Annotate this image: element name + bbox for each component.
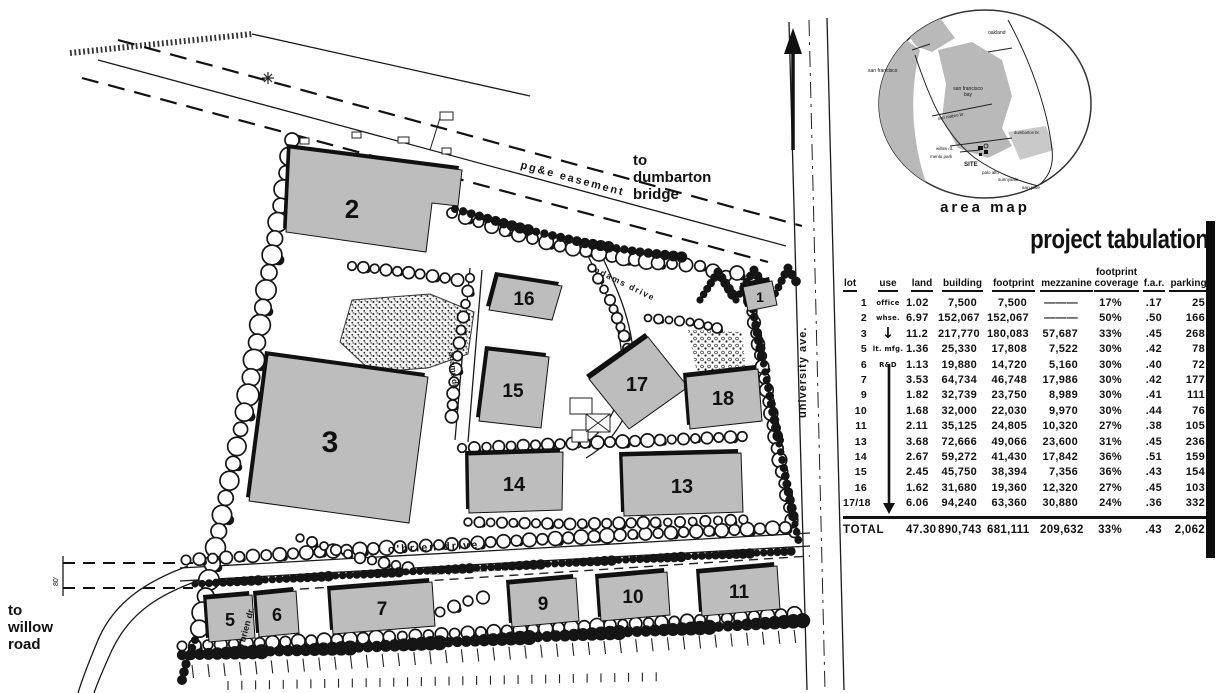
cell-lot: 13 — [843, 435, 870, 450]
cell-building: 7,500 — [938, 296, 987, 311]
cell-mezzanine: 17,986 — [1040, 373, 1093, 388]
building-6: 6 — [253, 587, 299, 637]
column-header-use: use — [870, 278, 906, 292]
cell-building: 217,770 — [938, 327, 987, 342]
building-label-17: 17 — [626, 374, 648, 396]
building-label-16: 16 — [513, 289, 534, 310]
scanned-site-plan-page: 12356791011131415161718 pg&e easement o'… — [0, 0, 1221, 693]
cell-lot: 16 — [843, 481, 870, 496]
label-to-willow-road: to willow road — [8, 603, 53, 653]
cell-land: 1.82 — [906, 388, 938, 403]
map-label-willow-rd: willow rd. — [936, 146, 953, 151]
building-label-1: 1 — [756, 289, 764, 305]
cell-coverage: 27% — [1093, 419, 1140, 434]
project-tabulation: project tabulation lotuselandbuildingfoo… — [843, 224, 1209, 539]
cell-mezzanine: 30,880 — [1040, 496, 1093, 511]
building-label-3: 3 — [322, 426, 339, 459]
cell-use — [870, 435, 906, 450]
cell-footprint: 22,030 — [987, 404, 1040, 419]
cell-mezzanine: 5,160 — [1040, 358, 1093, 373]
cell-land: 3.68 — [906, 435, 938, 450]
column-header-mezzanine: mezzanine — [1040, 278, 1093, 292]
cell-building: 94,240 — [938, 496, 987, 511]
cell-land: 2.67 — [906, 450, 938, 465]
cell-parking: 25 — [1168, 296, 1209, 311]
cell-use — [870, 404, 906, 419]
cell-far: .45 — [1140, 481, 1168, 496]
rail-spur-line — [252, 34, 530, 96]
cell-land: 1.02 — [906, 296, 938, 311]
cell-coverage: 24% — [1093, 496, 1140, 511]
cell-lot: 6 — [843, 358, 870, 373]
building-label-9: 9 — [538, 594, 549, 615]
building-label-14: 14 — [503, 474, 526, 496]
cell-land: 1.68 — [906, 404, 938, 419]
building-15: 15 — [476, 346, 549, 428]
cell-coverage: 30% — [1093, 342, 1140, 357]
cell-footprint: 49,066 — [987, 435, 1040, 450]
cell-parking: 166 — [1168, 311, 1209, 326]
cell-far: .43 — [1140, 465, 1168, 480]
cell-lot: 9 — [843, 388, 870, 403]
cell-building: 31,680 — [938, 481, 987, 496]
cell-use — [870, 465, 906, 480]
parking-ticks — [228, 672, 656, 690]
pgae-easement-label: pg&e easement — [519, 159, 626, 198]
cell-far: .40 — [1140, 358, 1168, 373]
map-label-menlo-park: menlo park — [930, 154, 953, 159]
cell-use — [870, 450, 906, 465]
map-label-dumbarton-br: dumbarton br. — [1014, 130, 1040, 135]
cell-lot: 7 — [843, 373, 870, 388]
adams-drive-label: adams drive — [593, 265, 657, 303]
cell-footprint: 38,394 — [987, 465, 1040, 480]
building-11: 11 — [696, 562, 780, 616]
university-ave-east-edge — [827, 18, 844, 690]
cell-land: 1.13 — [906, 358, 938, 373]
cell-lot: 11 — [843, 419, 870, 434]
cell-mezzanine: 7,356 — [1040, 465, 1093, 480]
cell-parking: 76 — [1168, 404, 1209, 419]
total-cell-far: .43 — [1140, 523, 1168, 538]
cell-use — [870, 496, 906, 511]
cell-far: .38 — [1140, 419, 1168, 434]
cell-use: ↓ — [870, 327, 906, 342]
cell-coverage: 36% — [1093, 465, 1140, 480]
cell-far: .44 — [1140, 404, 1168, 419]
easement-star-symbol — [262, 72, 274, 84]
cell-mezzanine: ——— — [1040, 296, 1093, 311]
tabulation-total-row: TOTAL47.30890,743681,111209,63233%.432,0… — [843, 516, 1209, 538]
cell-footprint: 152,067 — [987, 311, 1040, 326]
column-header-far: f.a.r. — [1140, 278, 1168, 292]
cell-footprint: 63,360 — [987, 496, 1040, 511]
area-map: oaklandsan franciscosan franciscobaysan … — [865, 10, 1091, 216]
column-header-parking: parking — [1168, 278, 1209, 292]
label-to-dumbarton-bridge: to dumbarton bridge — [633, 153, 711, 203]
cell-far: .36 — [1140, 496, 1168, 511]
cell-far: .50 — [1140, 311, 1168, 326]
total-cell-footprint: 681,111 — [987, 523, 1040, 538]
area-map-caption: area map — [940, 199, 1030, 216]
cell-use: R&D — [870, 358, 906, 373]
cell-land: 11.2 — [906, 327, 938, 342]
cell-parking: 103 — [1168, 481, 1209, 496]
cell-coverage: 30% — [1093, 373, 1140, 388]
cell-use — [870, 388, 906, 403]
cell-lot: 3 — [843, 327, 870, 342]
cell-land: 1.36 — [906, 342, 938, 357]
cell-lot: 14 — [843, 450, 870, 465]
cell-land: 2.45 — [906, 465, 938, 480]
tabulation-title: project tabulation — [1031, 224, 1209, 255]
cell-coverage: 33% — [1093, 327, 1140, 342]
cell-coverage: 36% — [1093, 450, 1140, 465]
cell-use — [870, 481, 906, 496]
cell-far: .51 — [1140, 450, 1168, 465]
cell-lot: 5 — [843, 342, 870, 357]
map-label-sunnyvale: sunnyvale — [998, 177, 1019, 182]
total-cell-parking: 2,062 — [1168, 523, 1209, 538]
cell-footprint: 7,500 — [987, 296, 1040, 311]
dimension-80ft-label: 80' — [53, 577, 60, 586]
cell-footprint: 46,748 — [987, 373, 1040, 388]
map-label-palo-alto: palo alto — [982, 170, 1000, 175]
cell-building: 25,330 — [938, 342, 987, 357]
cell-land: 1.62 — [906, 481, 938, 496]
cell-mezzanine: 17,842 — [1040, 450, 1093, 465]
cell-far: .41 — [1140, 388, 1168, 403]
cell-mezzanine: 12,320 — [1040, 481, 1093, 496]
cell-parking: 268 — [1168, 327, 1209, 342]
building-18: 18 — [683, 365, 762, 429]
building-14: 14 — [465, 448, 563, 513]
cell-building: 35,125 — [938, 419, 987, 434]
cell-footprint: 180,083 — [987, 327, 1040, 342]
cell-footprint: 24,805 — [987, 419, 1040, 434]
cell-parking: 159 — [1168, 450, 1209, 465]
building-label-11: 11 — [729, 582, 750, 603]
total-cell-mezzanine: 209,632 — [1040, 523, 1093, 538]
cell-lot: 10 — [843, 404, 870, 419]
cell-building: 32,739 — [938, 388, 987, 403]
north-arrow-head — [784, 28, 802, 54]
cell-footprint: 14,720 — [987, 358, 1040, 373]
map-label-san-francisco: san francisco — [868, 68, 898, 74]
tabulation-header: lotuselandbuildingfootprintmezzaninefoot… — [843, 262, 1209, 292]
cell-building: 152,067 — [938, 311, 987, 326]
cell-mezzanine: 8,989 — [1040, 388, 1093, 403]
cell-footprint: 19,360 — [987, 481, 1040, 496]
cell-coverage: 30% — [1093, 388, 1140, 403]
cell-coverage: 30% — [1093, 358, 1140, 373]
cell-building: 59,272 — [938, 450, 987, 465]
building-2: 2 — [283, 144, 462, 252]
building-label-13: 13 — [671, 476, 693, 498]
tree-row — [435, 591, 489, 616]
right-edge-bar — [1206, 221, 1215, 558]
cell-land: 2.11 — [906, 419, 938, 434]
cell-land: 6.06 — [906, 496, 938, 511]
total-cell-building: 890,743 — [938, 523, 987, 538]
cell-far: .42 — [1140, 342, 1168, 357]
university-ave-label: university ave. — [797, 327, 809, 418]
building-label-10: 10 — [622, 587, 643, 608]
cell-far: .42 — [1140, 373, 1168, 388]
cell-lot: 2 — [843, 311, 870, 326]
cell-lot: 15 — [843, 465, 870, 480]
cell-building: 72,666 — [938, 435, 987, 450]
cell-building: 19,880 — [938, 358, 987, 373]
cell-mezzanine: 57,687 — [1040, 327, 1093, 342]
cell-far: .17 — [1140, 296, 1168, 311]
tree-row — [348, 262, 464, 286]
cell-parking: 105 — [1168, 419, 1209, 434]
cell-mezzanine: 10,320 — [1040, 419, 1093, 434]
building-label-6: 6 — [272, 605, 282, 625]
cell-mezzanine: ——— — [1040, 311, 1093, 326]
building-16: 16 — [486, 272, 562, 320]
tree-row — [644, 314, 723, 333]
cell-lot: 1 — [843, 296, 870, 311]
university-ave-centerline — [809, 20, 825, 690]
building-label-15: 15 — [502, 381, 524, 402]
cell-parking: 111 — [1168, 388, 1209, 403]
cell-use — [870, 419, 906, 434]
cell-far: .45 — [1140, 435, 1168, 450]
building-1: 1 — [740, 277, 777, 311]
building-3: 3 — [246, 351, 428, 523]
cell-parking: 236 — [1168, 435, 1209, 450]
building-label-2: 2 — [345, 194, 359, 224]
cell-footprint: 41,430 — [987, 450, 1040, 465]
cell-use — [870, 373, 906, 388]
cell-building: 64,734 — [938, 373, 987, 388]
total-cell-total: TOTAL — [843, 523, 906, 538]
cell-coverage: 27% — [1093, 481, 1140, 496]
cell-coverage: 31% — [1093, 435, 1140, 450]
cell-coverage: 17% — [1093, 296, 1140, 311]
cell-lot: 17/18 — [843, 496, 870, 511]
cell-land: 3.53 — [906, 373, 938, 388]
map-label-oakland: oakland — [988, 30, 1006, 36]
column-header-building: building — [938, 278, 987, 292]
cell-use: office — [870, 296, 906, 311]
cell-coverage: 30% — [1093, 404, 1140, 419]
building-13: 13 — [619, 449, 743, 516]
tabulation-title-row: project tabulation — [843, 224, 1209, 262]
column-header-lot: lot — [843, 278, 870, 292]
column-header-land: land — [906, 278, 938, 292]
railroad-line — [70, 34, 252, 53]
tabulation-rows: 1office1.027,5007,500———17%.17252whse.6.… — [843, 296, 1209, 511]
cell-parking: 154 — [1168, 465, 1209, 480]
cell-parking: 78 — [1168, 342, 1209, 357]
cell-parking: 177 — [1168, 373, 1209, 388]
total-cell-land: 47.30 — [906, 523, 938, 538]
building-label-5: 5 — [225, 610, 235, 630]
cell-building: 32,000 — [938, 404, 987, 419]
cell-building: 45,750 — [938, 465, 987, 480]
obrien-dr-curve-west — [78, 566, 188, 693]
cell-use: lt. mfg. — [870, 342, 906, 357]
cell-mezzanine: 9,970 — [1040, 404, 1093, 419]
cell-footprint: 23,750 — [987, 388, 1040, 403]
building-10: 10 — [595, 568, 670, 621]
cell-far: .45 — [1140, 327, 1168, 342]
cell-parking: 332 — [1168, 496, 1209, 511]
cell-footprint: 17,808 — [987, 342, 1040, 357]
cell-mezzanine: 23,600 — [1040, 435, 1093, 450]
cell-parking: 72 — [1168, 358, 1209, 373]
total-cell-coverage: 33% — [1093, 523, 1140, 538]
building-9: 9 — [506, 574, 579, 627]
building-label-7: 7 — [377, 599, 388, 620]
cell-land: 6.97 — [906, 311, 938, 326]
building-label-18: 18 — [712, 388, 734, 410]
building-7: 7 — [327, 578, 435, 634]
column-header-coverage: footprintcoverage — [1093, 267, 1140, 292]
map-label-site: SITE — [964, 161, 978, 168]
cell-mezzanine: 7,522 — [1040, 342, 1093, 357]
column-header-footprint: footprint — [987, 278, 1040, 292]
cell-coverage: 50% — [1093, 311, 1140, 326]
map-label-san-jose: san jose — [1022, 185, 1040, 191]
